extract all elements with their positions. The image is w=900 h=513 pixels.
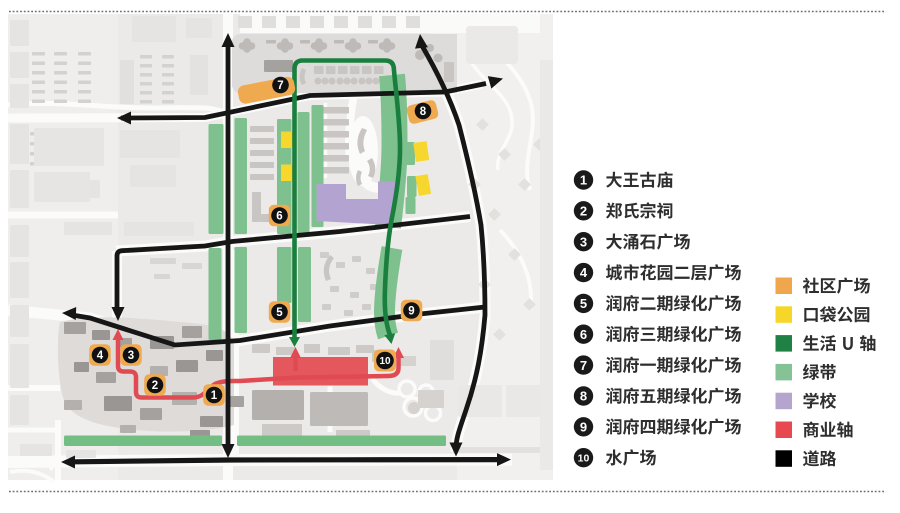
svg-text:10: 10 <box>578 452 590 464</box>
svg-text:7: 7 <box>580 358 587 373</box>
svg-text:5: 5 <box>580 296 587 311</box>
svg-text:6: 6 <box>580 327 587 342</box>
svg-text:2: 2 <box>580 204 587 219</box>
svg-text:6: 6 <box>276 211 282 223</box>
svg-text:2: 2 <box>152 380 158 392</box>
svg-text:4: 4 <box>580 265 588 280</box>
svg-text:3: 3 <box>128 350 134 362</box>
svg-text:3: 3 <box>580 234 587 249</box>
svg-text:9: 9 <box>580 420 587 435</box>
svg-text:8: 8 <box>580 389 587 404</box>
svg-text:8: 8 <box>420 106 427 118</box>
svg-text:4: 4 <box>97 350 104 362</box>
svg-text:7: 7 <box>277 80 283 92</box>
svg-text:1: 1 <box>211 390 218 402</box>
svg-text:9: 9 <box>408 306 414 318</box>
svg-text:10: 10 <box>379 356 391 367</box>
svg-text:1: 1 <box>580 173 587 188</box>
svg-text:5: 5 <box>276 307 283 319</box>
